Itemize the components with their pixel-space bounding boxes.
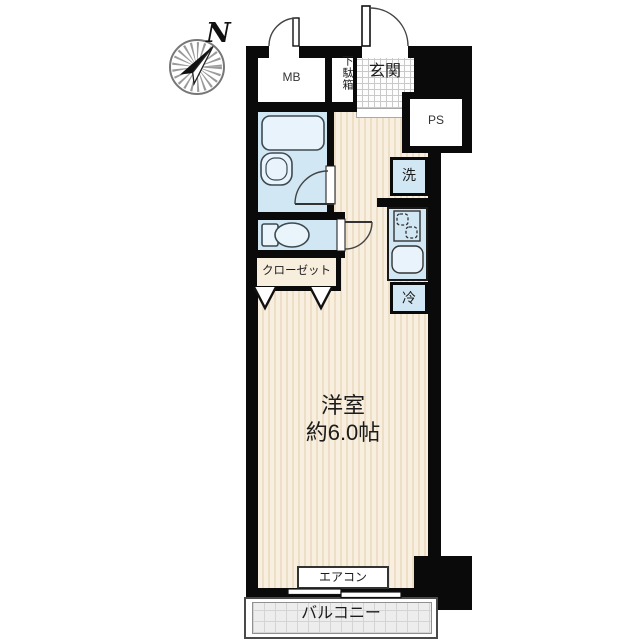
main-room-label: 洋室 約6.0帖	[258, 392, 428, 446]
room-size: 約6.0帖	[258, 419, 428, 446]
toilet-icon	[262, 223, 309, 247]
balcony-window	[288, 589, 401, 598]
linework-overlay: N	[0, 0, 640, 640]
stove-icon	[394, 211, 420, 241]
pipe-space-label: PS	[410, 114, 462, 128]
bathtub-icon	[262, 116, 324, 150]
closet-door-marks	[254, 287, 332, 308]
bath-basin-icon	[261, 153, 292, 185]
entrance-door	[362, 6, 408, 46]
balcony-label: バルコニー	[252, 605, 430, 623]
toilet-door	[337, 219, 372, 251]
kitchen-sink-icon	[392, 246, 423, 273]
entrance-label: 玄関	[356, 63, 414, 81]
north-label: N	[205, 18, 232, 49]
mb-label: MB	[258, 71, 325, 85]
washer-label: 洗	[390, 167, 428, 183]
mb-door	[269, 18, 299, 46]
shoe-cabinet-label: 下駄箱	[333, 55, 353, 103]
compass-icon: N	[170, 18, 232, 94]
refrigerator-label: 冷	[390, 290, 428, 306]
closet-label: クローゼット	[252, 265, 341, 278]
bathroom-door	[295, 166, 335, 204]
room-name: 洋室	[258, 392, 428, 419]
floor-plan: エアコン	[0, 0, 640, 640]
